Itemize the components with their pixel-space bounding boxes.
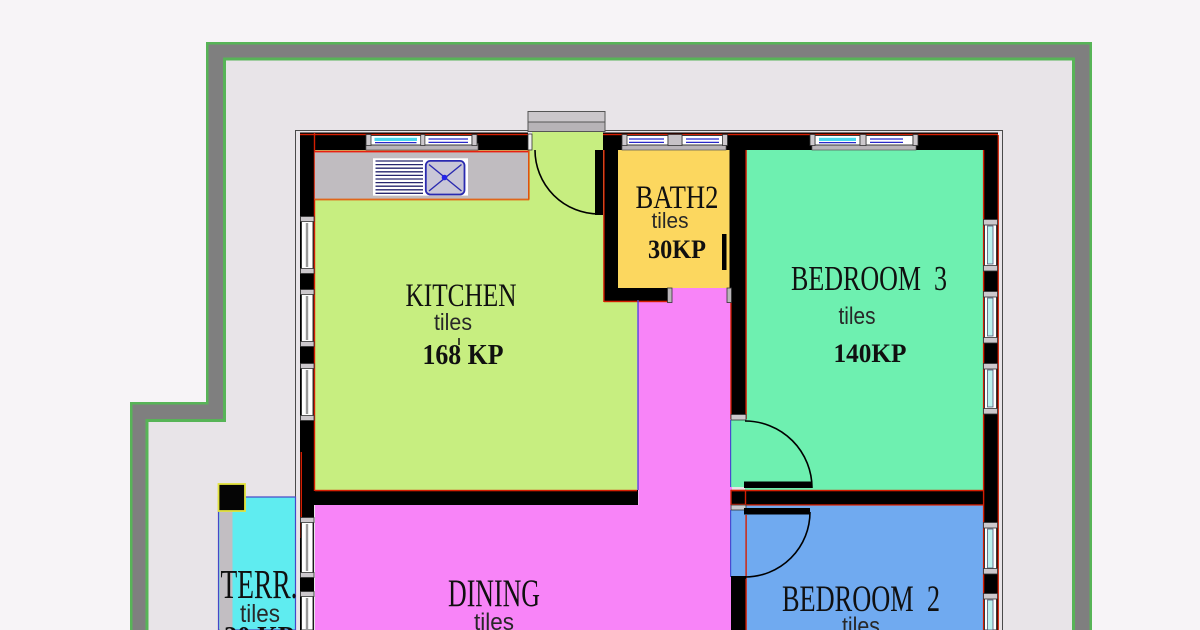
svg-text:tiles: tiles bbox=[434, 309, 472, 335]
svg-text:tiles: tiles bbox=[839, 303, 876, 330]
svg-text:30KP: 30KP bbox=[648, 235, 706, 264]
svg-text:tiles: tiles bbox=[652, 208, 689, 233]
svg-text:tiles: tiles bbox=[474, 609, 514, 630]
svg-text:tiles: tiles bbox=[842, 613, 880, 630]
svg-text:168 KP: 168 KP bbox=[423, 339, 504, 371]
svg-text:140KP: 140KP bbox=[834, 339, 907, 368]
svg-text:20 KP: 20 KP bbox=[224, 622, 294, 630]
svg-text:BEDROOM 3: BEDROOM 3 bbox=[791, 259, 947, 298]
